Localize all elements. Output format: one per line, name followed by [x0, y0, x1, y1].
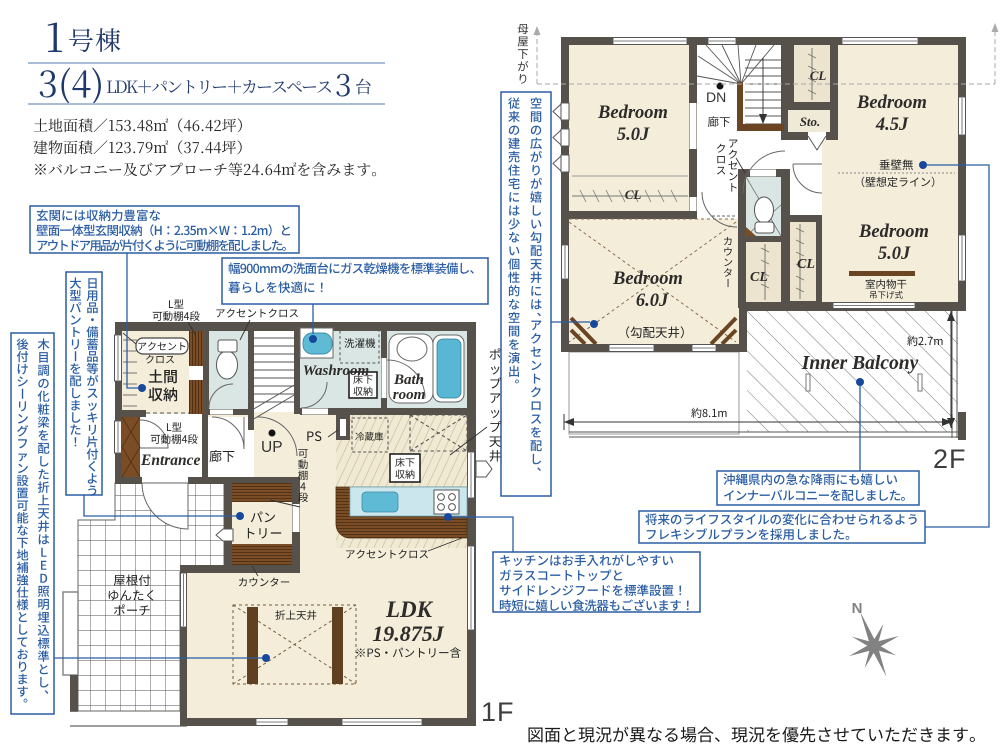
svg-text:1F: 1F — [481, 697, 515, 727]
svg-text:room: room — [393, 387, 426, 403]
svg-text:Bath: Bath — [393, 372, 424, 388]
svg-text:Washroom: Washroom — [303, 363, 369, 379]
svg-text:Bedroom: Bedroom — [856, 93, 927, 113]
svg-text:Inner Balcony: Inner Balcony — [801, 353, 919, 374]
svg-text:Bedroom: Bedroom — [858, 222, 929, 242]
svg-text:5.0J: 5.0J — [617, 125, 650, 145]
svg-text:DN: DN — [706, 89, 726, 105]
svg-text:2F: 2F — [933, 444, 967, 474]
svg-text:LDK: LDK — [385, 597, 434, 622]
svg-text:Bedroom: Bedroom — [612, 269, 683, 289]
svg-text:CL: CL — [625, 187, 642, 202]
svg-text:Sto.: Sto. — [800, 114, 821, 129]
svg-text:Entrance: Entrance — [140, 452, 201, 469]
svg-text:4.5J: 4.5J — [875, 115, 909, 135]
svg-text:Bedroom: Bedroom — [597, 103, 668, 123]
svg-text:N: N — [852, 600, 863, 617]
svg-text:5.0J: 5.0J — [878, 244, 911, 264]
svg-text:6.0J: 6.0J — [636, 291, 669, 311]
svg-text:CL: CL — [750, 270, 768, 285]
svg-text:CL: CL — [810, 68, 827, 83]
svg-text:19.875J: 19.875J — [372, 621, 445, 646]
svg-text:UP: UP — [261, 439, 283, 456]
svg-text:CL: CL — [797, 257, 815, 272]
